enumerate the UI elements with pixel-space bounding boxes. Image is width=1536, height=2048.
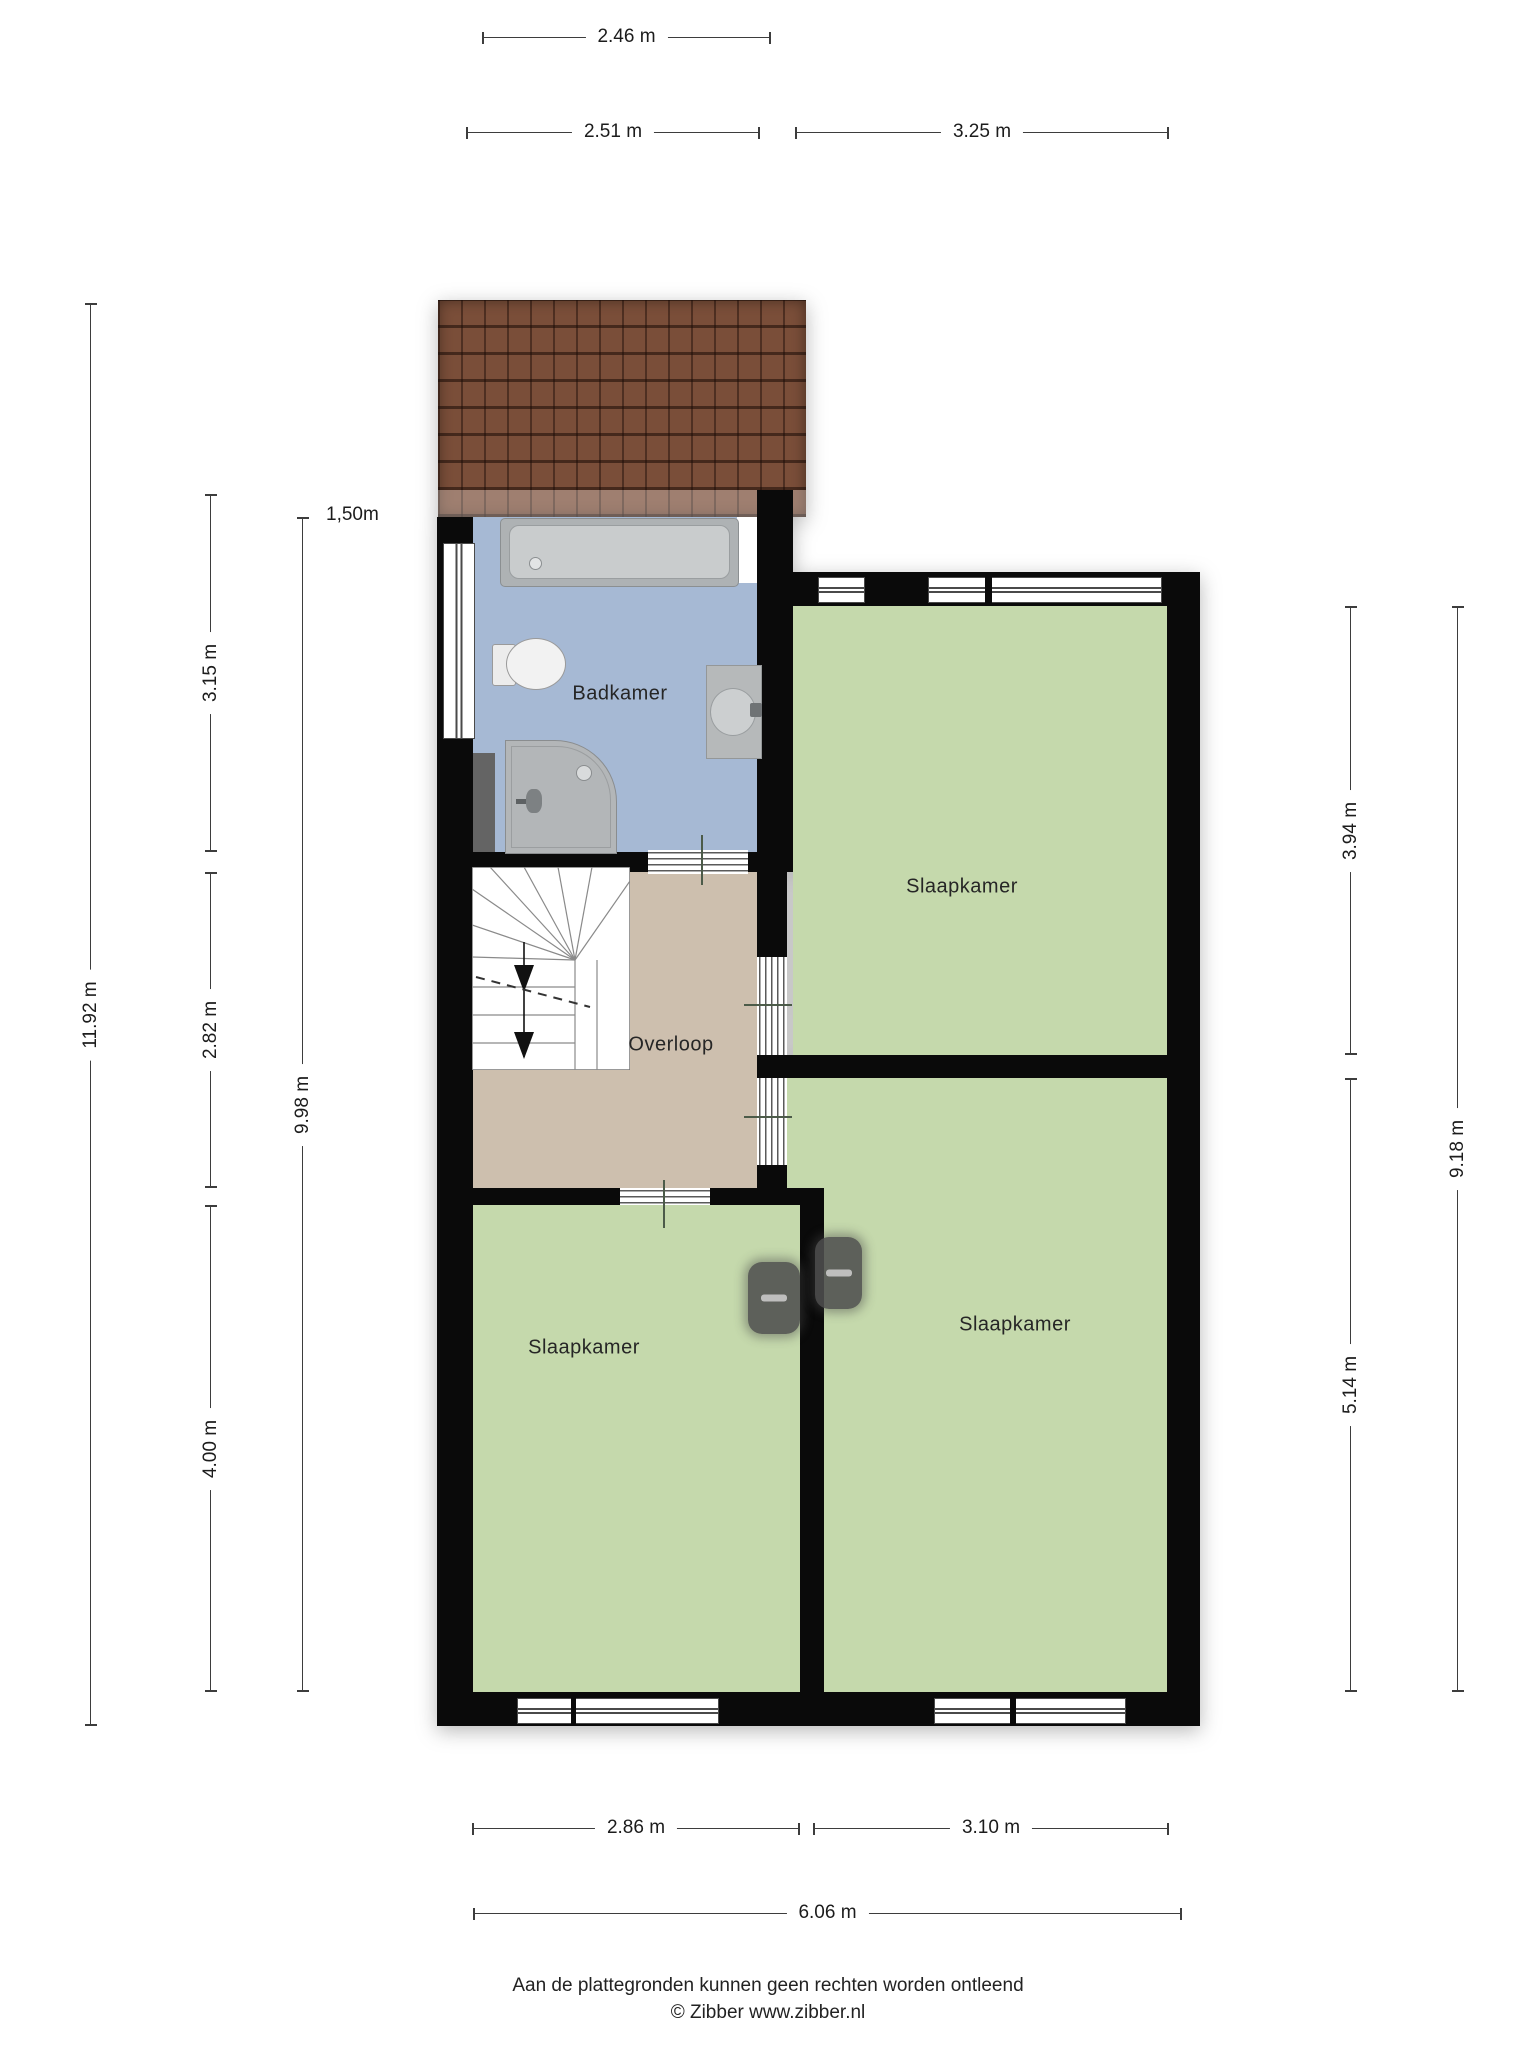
bedroom-bl-door-swing (663, 1180, 665, 1228)
bedroom-tr-window-mullion (985, 572, 992, 606)
stairs (472, 867, 630, 1070)
boiler-unit-left (748, 1262, 800, 1334)
bedroom-bl-window-mullion (571, 1692, 576, 1726)
bedroom-br-window-mullion (1010, 1692, 1016, 1726)
toilet-bowl (506, 638, 566, 690)
sink-faucet (750, 703, 762, 717)
footer-credit: © Zibber www.zibber.nl (0, 2002, 1536, 2024)
shower-head (576, 765, 592, 781)
bathtub-faucet (529, 557, 542, 570)
bedroom-br-door (757, 1078, 787, 1165)
wall-bathroom-bedroom (757, 490, 793, 872)
bathroom-niche (737, 517, 757, 583)
boiler-unit-right (815, 1237, 862, 1309)
bedroom-tr-label: Slaapkamer (906, 876, 1018, 899)
footer-disclaimer: Aan de plattegronden kunnen geen rechten… (0, 1975, 1536, 1997)
bathroom-door-swing (701, 835, 703, 885)
landing-label: Overloop (628, 1034, 713, 1057)
bedroom-tr-door (757, 957, 787, 1055)
bedroom-bl-window (517, 1698, 719, 1724)
roof-eave-overlay (438, 490, 806, 517)
wall-right-exterior (1167, 572, 1200, 1726)
bathroom-door (648, 850, 748, 874)
bedroom-br-door-swing (744, 1116, 792, 1118)
bathtub-inner (509, 525, 730, 579)
bedroom-tr-window-large (928, 577, 1162, 603)
bedroom-tr-window-small (818, 577, 865, 603)
radiator (473, 753, 495, 852)
bedroom-br-window (934, 1698, 1126, 1724)
bedroom-tr-door-swing (744, 1004, 792, 1006)
wall-bedrooms-right-divider (763, 1055, 1167, 1078)
shower-valve-knob (526, 789, 542, 813)
floorplan: Badkamer Overloop Slaapkamer Slaapkamer … (0, 0, 1536, 2048)
bathtub (500, 518, 739, 587)
bathroom-label: Badkamer (572, 683, 667, 706)
bedroom-br-floor (787, 1078, 1167, 1692)
bedroom-bl-label: Slaapkamer (528, 1337, 640, 1360)
bedroom-tr-floor (793, 606, 1167, 1055)
bedroom-br-label: Slaapkamer (959, 1314, 1071, 1337)
bathroom-window (443, 543, 475, 739)
bedroom-bl-door (620, 1188, 710, 1205)
roof-dormer (438, 300, 806, 517)
